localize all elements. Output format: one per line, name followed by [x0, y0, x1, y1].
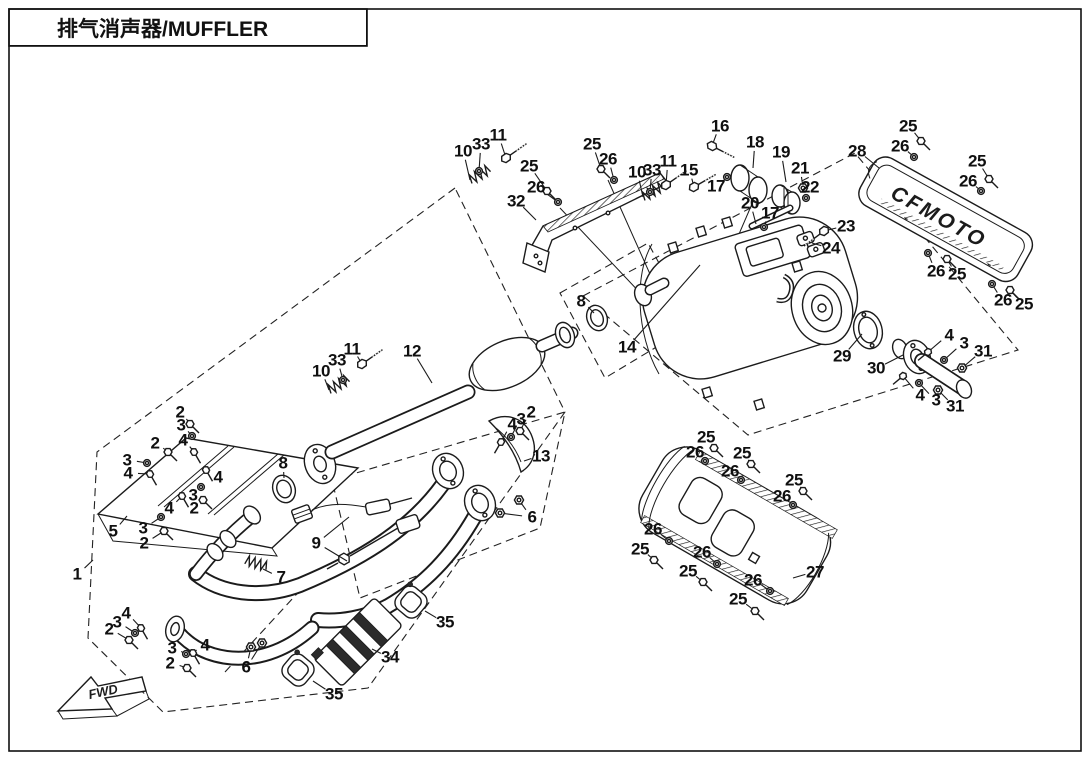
part-top-cover-28: CFMOTO	[852, 151, 1037, 286]
part-muffler-body	[631, 205, 870, 410]
fwd-arrow: FWD	[58, 677, 149, 719]
part-heat-shield-13	[489, 417, 534, 472]
exploded-diagram: CFMOTO FWD	[0, 0, 1090, 760]
part-gasket-8-rear	[583, 302, 611, 333]
part-bottom-cover-27	[629, 437, 841, 614]
part-spring-7	[244, 555, 268, 571]
page-title: 排气消声器/MUFFLER	[57, 13, 268, 43]
parts-diagram-sheet: CFMOTO FWD 排气消声器/MUFFLE	[0, 0, 1090, 760]
leader-lines	[85, 133, 1017, 689]
diagram-title: 排气消声器/MUFFLER	[10, 10, 367, 46]
